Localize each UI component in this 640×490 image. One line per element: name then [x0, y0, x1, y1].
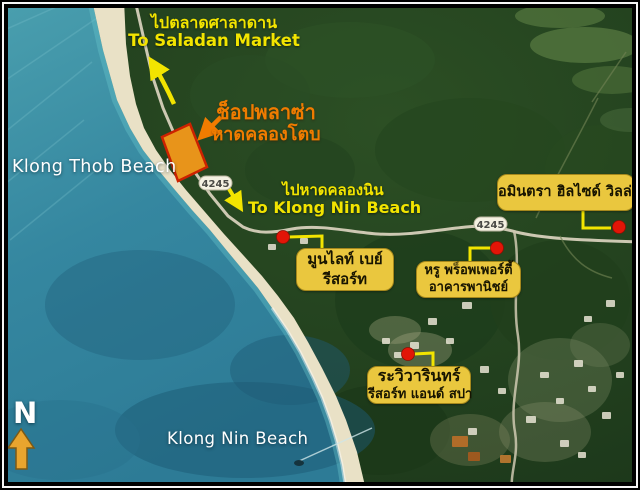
map-canvas: 4245 4245 ไปตลาดศาลาดาน To Saladan Marke…	[0, 0, 640, 490]
compass-north-label: N	[13, 396, 38, 430]
note-klong-nin-thai: ไปหาดคลองนิน	[248, 182, 418, 199]
label-shop-plaza: ช็อปพลาซ่า หาดคลองโตบ	[196, 100, 336, 146]
route-marker-1-number: 4245	[202, 179, 230, 190]
callout-raviwarin-line2: รีสอร์ท แอนด์ สปา	[368, 387, 470, 404]
note-saladan-thai: ไปตลาดศาลาดาน	[128, 14, 300, 32]
moonlight-dot	[277, 231, 290, 244]
label-shop-plaza-line1: ช็อปพลาซ่า	[196, 100, 336, 124]
callout-raviwarin-resort-spa: ระวิวารินทร์ รีสอร์ท แอนด์ สปา	[367, 366, 471, 404]
raviwarin-dot	[402, 348, 415, 361]
note-saladan-english: To Saladan Market	[128, 32, 300, 50]
amintra-dot	[613, 221, 626, 234]
callout-ru-line2: อาคารพานิชย์	[417, 280, 520, 297]
route-marker-2-number: 4245	[477, 220, 505, 231]
label-klong-thob-beach: Klong Thob Beach	[12, 157, 177, 177]
boat	[294, 460, 304, 466]
callout-moonlight-line1: มูนไลท์ เบย์	[297, 250, 393, 270]
note-klong-nin-english: To Klong Nin Beach	[248, 199, 418, 217]
callout-amintra-line1: อมินตรา ฮิลไซด์ วิลล่า	[498, 183, 634, 202]
callout-moonlight-line2: รีสอร์ท	[297, 270, 393, 290]
callout-moonlight-bay-resort: มูนไลท์ เบย์ รีสอร์ท	[296, 248, 394, 291]
callout-ru-line1: หรู พร็อพเพอร์ตี้	[417, 263, 520, 280]
note-saladan: ไปตลาดศาลาดาน To Saladan Market	[128, 14, 300, 50]
route-marker-2: 4245	[474, 217, 507, 231]
route-marker-1: 4245	[199, 176, 232, 190]
ru-property-dot	[491, 242, 504, 255]
label-klong-nin-beach: Klong Nin Beach	[167, 429, 308, 448]
callout-amintra-hillside-villa: อมินตรา ฮิลไซด์ วิลล่า	[497, 174, 635, 211]
map-artwork: 4245 4245	[0, 0, 640, 490]
callout-raviwarin-line1: ระวิวารินทร์	[368, 366, 470, 387]
callout-ru-property: หรู พร็อพเพอร์ตี้ อาคารพานิชย์	[416, 261, 521, 298]
note-klong-nin: ไปหาดคลองนิน To Klong Nin Beach	[248, 182, 418, 217]
label-shop-plaza-line2: หาดคลองโตบ	[196, 124, 336, 146]
